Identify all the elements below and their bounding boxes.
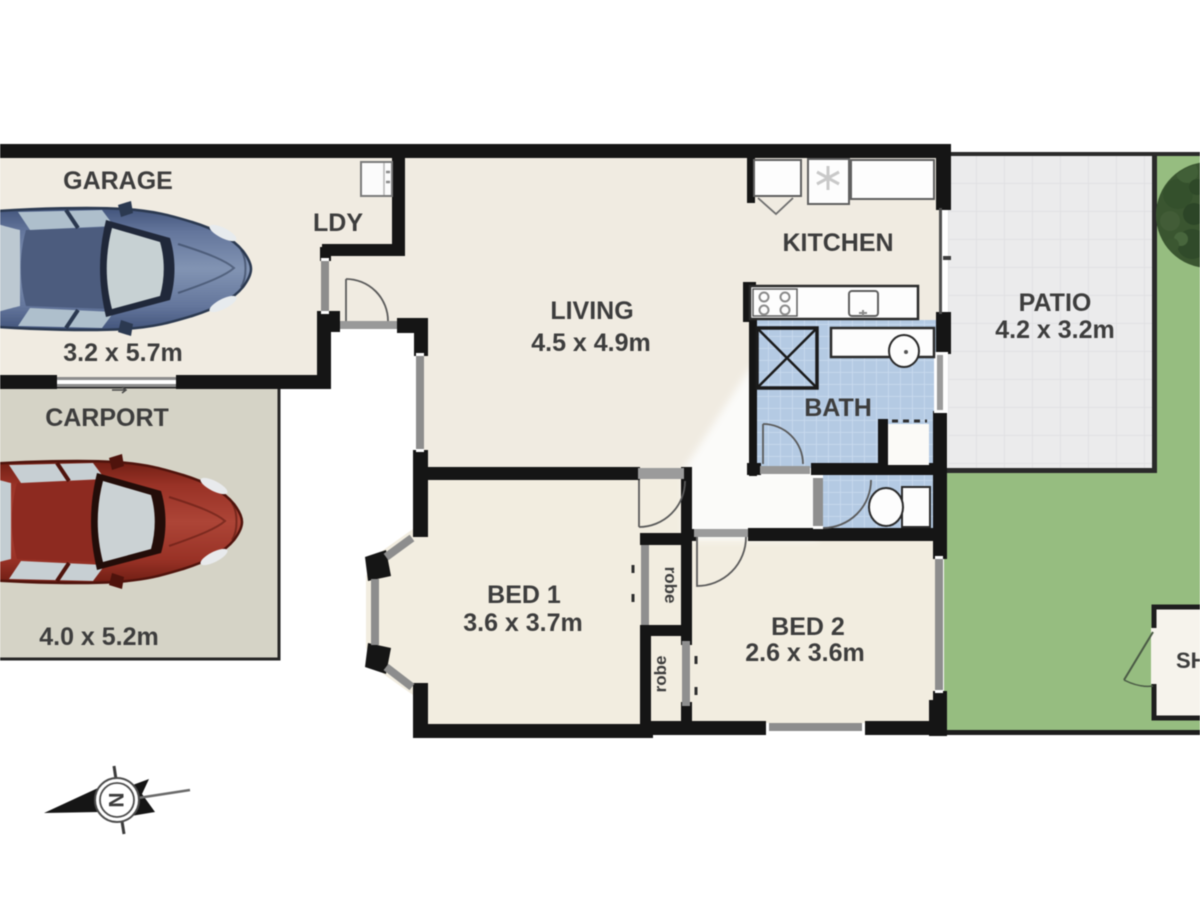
svg-text:3.2 x 5.7m: 3.2 x 5.7m xyxy=(63,339,183,367)
svg-text:4.5 x 4.9m: 4.5 x 4.9m xyxy=(531,329,651,357)
svg-text:BED 2: BED 2 xyxy=(771,613,845,641)
svg-text:KITCHEN: KITCHEN xyxy=(782,229,893,257)
svg-text:N: N xyxy=(106,792,129,807)
svg-text:GARAGE: GARAGE xyxy=(63,167,173,195)
svg-text:PATIO: PATIO xyxy=(1019,289,1092,317)
svg-text:BED 1: BED 1 xyxy=(487,581,561,609)
svg-text:robe: robe xyxy=(661,567,680,604)
svg-text:4.0 x 5.2m: 4.0 x 5.2m xyxy=(39,623,159,651)
svg-text:2.6 x 3.6m: 2.6 x 3.6m xyxy=(745,639,865,667)
svg-text:LDY: LDY xyxy=(313,209,363,237)
svg-text:CARPORT: CARPORT xyxy=(45,404,169,432)
svg-text:robe: robe xyxy=(651,656,670,693)
svg-text:4.2 x 3.2m: 4.2 x 3.2m xyxy=(995,316,1115,344)
svg-text:LIVING: LIVING xyxy=(550,297,633,325)
svg-text:BATH: BATH xyxy=(804,394,872,422)
svg-text:SHED: SHED xyxy=(1176,648,1200,673)
svg-text:3.6 x 3.7m: 3.6 x 3.7m xyxy=(463,609,583,637)
